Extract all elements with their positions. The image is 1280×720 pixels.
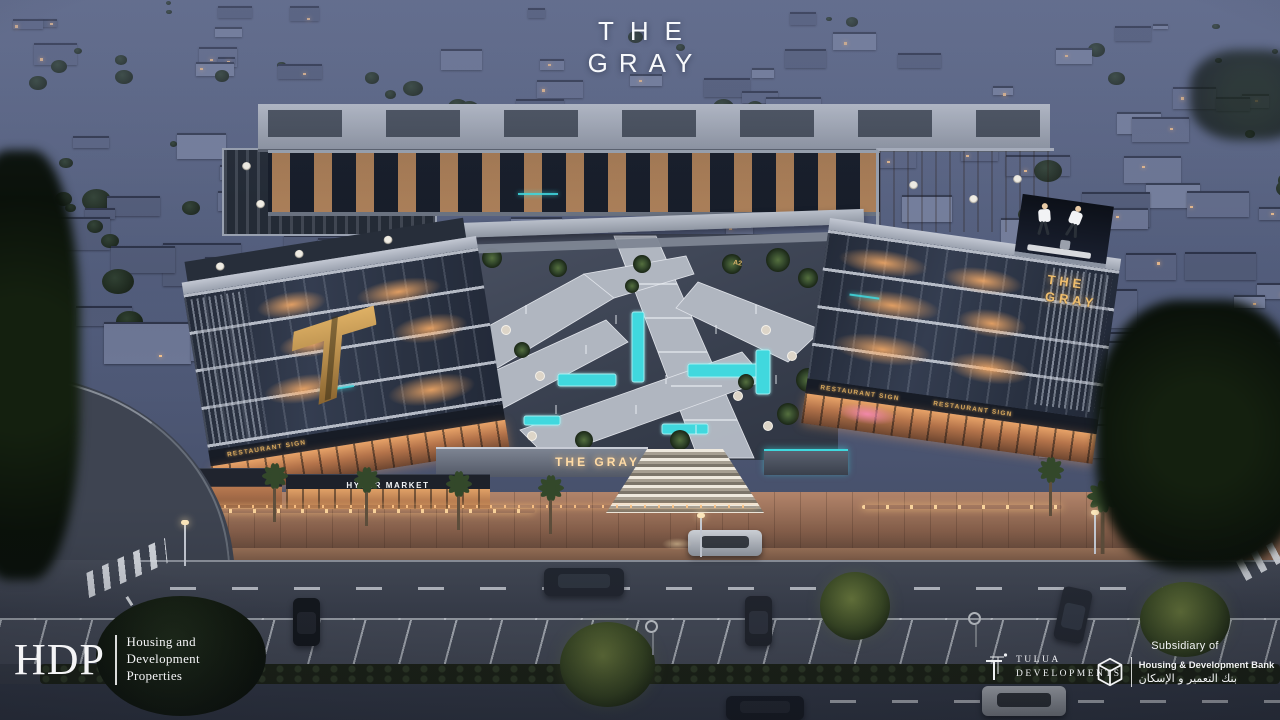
watermark-line2: GRAY: [0, 48, 1280, 79]
watermark-logo: THE GRAY: [0, 16, 1280, 79]
hdb-logo: Subsidiary of Housing & Development Bank…: [1092, 640, 1278, 687]
hdb-cube-icon: [1096, 657, 1124, 687]
aerial-render-scene: RESTAURANT SIGN RESTAURANT SIGN RESTAURA…: [0, 0, 1280, 720]
hdp-logo: HDP Housing and Development Properties: [14, 634, 200, 685]
branding-overlays: THE GRAY HDP Housing and Development Pro…: [0, 0, 1280, 720]
tulua-mark-icon: [984, 652, 1008, 682]
hdp-divider: [115, 635, 117, 685]
hdp-name-line2: Development: [127, 651, 200, 668]
hdb-name-ar: بنك التعمير و الإسكان: [1139, 672, 1275, 685]
hdb-name: Housing & Development Bank بنك التعمير و…: [1139, 660, 1275, 685]
hdb-lockup: Housing & Development Bank بنك التعمير و…: [1092, 657, 1278, 687]
hdp-name-line1: Housing and: [127, 634, 200, 651]
hdp-abbr: HDP: [14, 634, 105, 685]
hdp-name: Housing and Development Properties: [127, 634, 200, 685]
hdb-subsidiary-label: Subsidiary of: [1092, 640, 1278, 652]
hdb-divider: [1131, 657, 1132, 687]
hdp-name-line3: Properties: [127, 668, 200, 685]
watermark-line1: THE: [0, 16, 1280, 47]
hdb-name-en: Housing & Development Bank: [1139, 660, 1275, 671]
